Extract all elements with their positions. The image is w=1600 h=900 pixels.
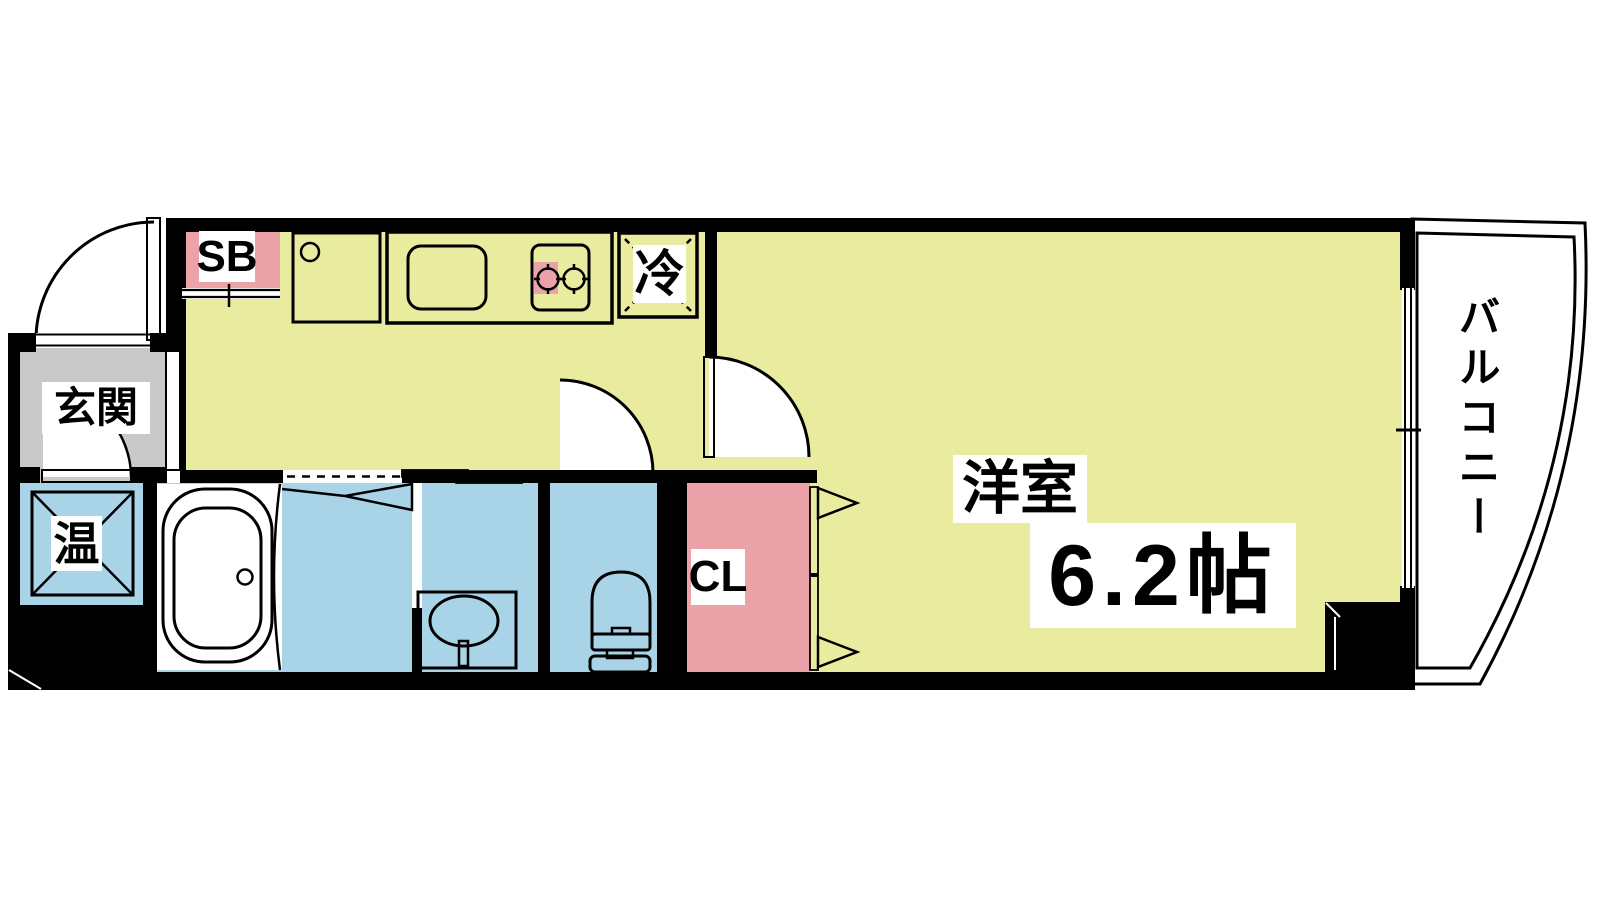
wall-heater-left [20,467,40,483]
refrigerator-label: 冷 [633,245,686,303]
entrance-door-swing [36,222,154,340]
floor-plan: 玄関 SB 冷 温 CL 洋室 6.2帖 バルコニー [0,0,1600,900]
western-room-label: 洋室 [953,455,1087,523]
bath-unit-pan [157,484,282,670]
wall-top [166,218,1415,232]
wall-kitchen-left [166,218,186,338]
wall-washroom-toilet [538,483,550,672]
closet-label: CL [691,549,745,605]
wall-below-heater [20,605,143,672]
wall-heater-right [131,467,167,483]
floor-plan-drawing [0,0,1600,900]
western-room-size-label: 6.2帖 [1030,523,1296,628]
wall-bottom [8,672,1415,690]
window-gap [1402,288,1414,588]
water-heater-label: 温 [51,516,102,571]
wall-window-top [1400,220,1415,290]
entrance-label: 玄関 [42,382,150,434]
wall-toilet-closet [657,483,687,672]
shoe-box-label: SB [199,231,255,282]
wall-left [8,333,20,690]
wall-heater-bath [143,483,157,672]
closet-door-divider [810,573,818,577]
entrance-step [166,348,180,470]
balcony-label: バルコニー [1449,271,1503,569]
wall-entrance-left [8,333,36,352]
wall-kitchen-room [705,225,717,357]
